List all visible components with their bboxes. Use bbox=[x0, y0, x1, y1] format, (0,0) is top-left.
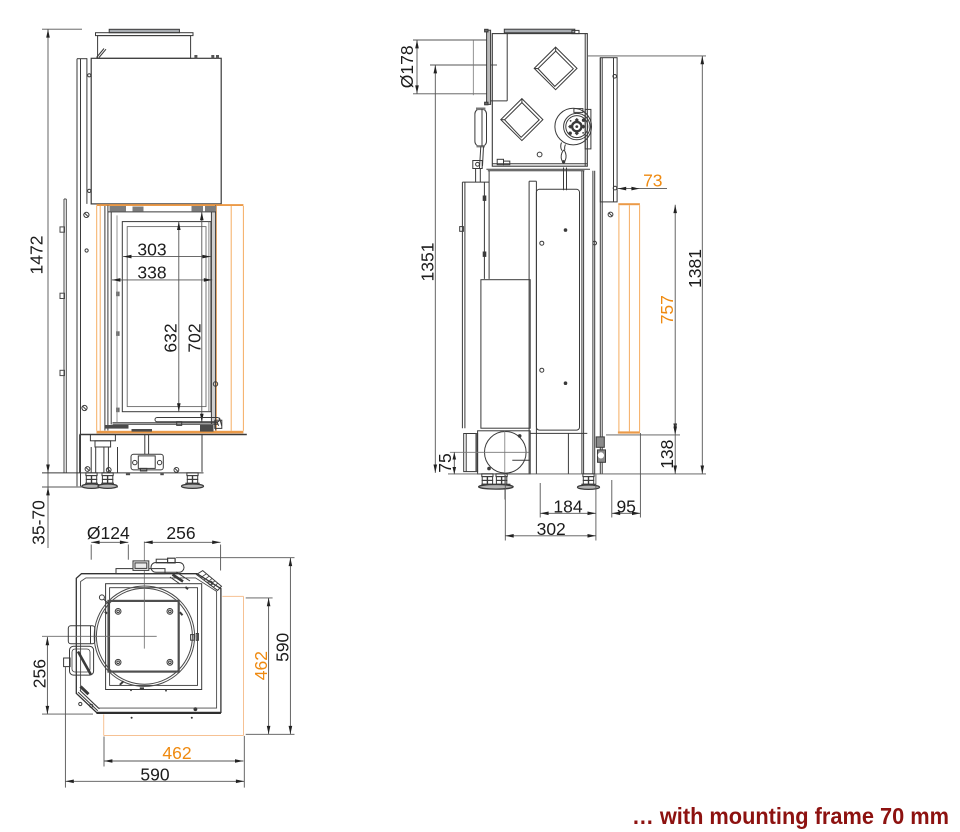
svg-text:590: 590 bbox=[273, 632, 293, 661]
svg-text:303: 303 bbox=[137, 239, 166, 259]
svg-text:75: 75 bbox=[435, 453, 455, 472]
svg-text:256: 256 bbox=[29, 659, 49, 688]
svg-text:302: 302 bbox=[537, 519, 566, 539]
svg-text:462: 462 bbox=[162, 743, 191, 763]
svg-text:… with mounting frame 70 mm: … with mounting frame 70 mm bbox=[632, 803, 949, 829]
svg-text:1381: 1381 bbox=[685, 249, 705, 288]
svg-text:35-70: 35-70 bbox=[29, 500, 49, 545]
svg-text:138: 138 bbox=[657, 440, 677, 469]
svg-text:590: 590 bbox=[140, 764, 169, 784]
svg-text:Ø124: Ø124 bbox=[87, 523, 130, 543]
svg-text:757: 757 bbox=[657, 295, 677, 324]
svg-text:184: 184 bbox=[553, 496, 582, 516]
svg-text:Ø178: Ø178 bbox=[397, 45, 417, 88]
svg-text:462: 462 bbox=[251, 651, 271, 680]
svg-text:95: 95 bbox=[616, 496, 635, 516]
svg-text:256: 256 bbox=[166, 523, 195, 543]
svg-text:338: 338 bbox=[137, 263, 166, 283]
svg-text:1351: 1351 bbox=[418, 243, 438, 282]
svg-text:1472: 1472 bbox=[27, 236, 47, 275]
svg-text:702: 702 bbox=[184, 323, 204, 352]
svg-text:632: 632 bbox=[161, 323, 181, 352]
svg-text:73: 73 bbox=[643, 170, 662, 190]
